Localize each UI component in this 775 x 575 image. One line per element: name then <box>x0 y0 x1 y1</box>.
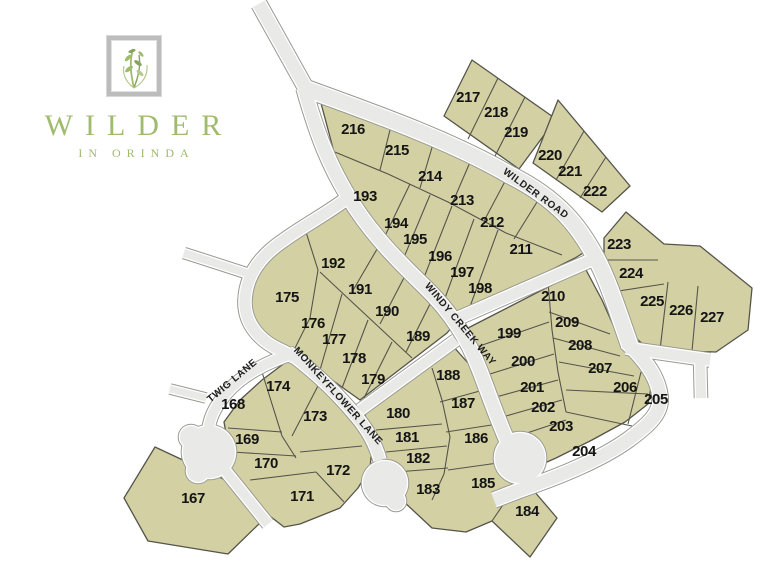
lot-number-192: 192 <box>321 255 345 272</box>
lot-215[interactable]: 215 <box>385 142 409 159</box>
lot-number-209: 209 <box>555 314 579 331</box>
lot-number-194: 194 <box>384 215 409 232</box>
lot-number-190: 190 <box>375 303 399 320</box>
lot-number-171: 171 <box>290 488 314 505</box>
lot-number-224: 224 <box>619 265 644 282</box>
lot-226[interactable]: 226 <box>669 302 693 319</box>
lot-number-175: 175 <box>275 289 299 306</box>
lot-224[interactable]: 224 <box>619 265 644 282</box>
lot-172[interactable]: 172 <box>326 462 350 479</box>
lot-number-181: 181 <box>395 429 419 446</box>
lot-214[interactable]: 214 <box>418 168 443 185</box>
lot-number-206: 206 <box>613 379 637 396</box>
lot-number-211: 211 <box>510 241 533 258</box>
lot-number-188: 188 <box>436 367 460 384</box>
lot-number-185: 185 <box>471 475 495 492</box>
lot-225[interactable]: 225 <box>640 293 664 310</box>
cul-de-sac-bulb <box>495 433 545 483</box>
lot-223[interactable]: 223 <box>607 236 631 253</box>
lot-204[interactable]: 204 <box>572 443 597 460</box>
lot-map: WILDER ROADWINDY CREEK WAYMONKEYFLOWER L… <box>0 0 775 575</box>
lot-207[interactable]: 207 <box>588 360 612 377</box>
lot-178[interactable]: 178 <box>342 350 366 367</box>
lot-number-167: 167 <box>181 490 205 507</box>
lot-number-212: 212 <box>480 214 504 231</box>
lot-194[interactable]: 194 <box>384 215 409 232</box>
lot-184[interactable]: 184 <box>515 503 540 520</box>
lot-number-202: 202 <box>531 399 555 416</box>
lot-number-191: 191 <box>348 281 372 298</box>
lot-190[interactable]: 190 <box>375 303 399 320</box>
cul-de-sac-bulb <box>187 460 209 482</box>
lot-221[interactable]: 221 <box>558 163 582 180</box>
lot-179[interactable]: 179 <box>361 371 385 388</box>
lot-number-205: 205 <box>644 391 668 408</box>
lot-number-198: 198 <box>468 280 492 297</box>
lot-201[interactable]: 201 <box>520 379 544 396</box>
lot-188[interactable]: 188 <box>436 367 460 384</box>
lot-219[interactable]: 219 <box>504 124 528 141</box>
lot-number-219: 219 <box>504 124 528 141</box>
lot-168[interactable]: 168 <box>221 396 245 413</box>
lot-number-173: 173 <box>303 408 327 425</box>
lot-number-178: 178 <box>342 350 366 367</box>
lot-number-222: 222 <box>583 183 607 200</box>
cul-de-sac-bulb <box>180 426 202 448</box>
lot-200[interactable]: 200 <box>511 353 535 370</box>
lot-222[interactable]: 222 <box>583 183 607 200</box>
lot-number-213: 213 <box>450 192 474 209</box>
lot-number-168: 168 <box>221 396 245 413</box>
lot-217[interactable]: 217 <box>456 89 480 106</box>
lot-174[interactable]: 174 <box>266 378 291 395</box>
lot-183[interactable]: 183 <box>416 481 440 498</box>
lot-206[interactable]: 206 <box>613 379 637 396</box>
lot-196[interactable]: 196 <box>428 248 452 265</box>
lot-202[interactable]: 202 <box>531 399 555 416</box>
wilder-orinda-site-map: WILDER IN ORINDA WILDER ROADWINDY CREEK … <box>0 0 775 575</box>
lot-number-200: 200 <box>511 353 535 370</box>
lot-220[interactable]: 220 <box>538 147 562 164</box>
lot-number-225: 225 <box>640 293 664 310</box>
road-segment <box>170 389 206 398</box>
lot-169[interactable]: 169 <box>235 431 259 448</box>
lot-number-193: 193 <box>353 188 377 205</box>
lot-number-207: 207 <box>588 360 612 377</box>
lot-197[interactable]: 197 <box>450 264 474 281</box>
lot-number-218: 218 <box>484 104 508 121</box>
lot-number-215: 215 <box>385 142 409 159</box>
lot-227[interactable]: 227 <box>700 309 724 326</box>
road-segment <box>259 4 308 92</box>
lot-number-189: 189 <box>406 328 430 345</box>
lot-170[interactable]: 170 <box>254 455 278 472</box>
lot-number-214: 214 <box>418 168 443 185</box>
lot-number-176: 176 <box>301 315 325 332</box>
lot-number-208: 208 <box>568 337 592 354</box>
lot-number-199: 199 <box>497 325 521 342</box>
lot-number-217: 217 <box>456 89 480 106</box>
lot-198[interactable]: 198 <box>468 280 492 297</box>
lot-186[interactable]: 186 <box>464 430 488 447</box>
lot-187[interactable]: 187 <box>451 395 475 412</box>
lot-189[interactable]: 189 <box>406 328 430 345</box>
lot-number-180: 180 <box>386 405 410 422</box>
lot-number-187: 187 <box>451 395 475 412</box>
lot-213[interactable]: 213 <box>450 192 474 209</box>
lot-180[interactable]: 180 <box>386 405 410 422</box>
lot-203[interactable]: 203 <box>549 418 573 435</box>
lot-218[interactable]: 218 <box>484 104 508 121</box>
lot-number-197: 197 <box>450 264 474 281</box>
lot-number-210: 210 <box>541 288 565 305</box>
lot-177[interactable]: 177 <box>322 331 346 348</box>
lot-173[interactable]: 173 <box>303 408 327 425</box>
lot-211[interactable]: 211 <box>510 241 533 258</box>
lot-number-221: 221 <box>558 163 582 180</box>
lot-number-172: 172 <box>326 462 350 479</box>
lot-182[interactable]: 182 <box>406 450 430 467</box>
lot-176[interactable]: 176 <box>301 315 325 332</box>
road-segment <box>700 356 701 398</box>
lot-212[interactable]: 212 <box>480 214 504 231</box>
lot-192[interactable]: 192 <box>321 255 345 272</box>
lot-number-227: 227 <box>700 309 724 326</box>
lot-number-182: 182 <box>406 450 430 467</box>
lot-205[interactable]: 205 <box>644 391 668 408</box>
lot-number-179: 179 <box>361 371 385 388</box>
lot-number-216: 216 <box>341 121 365 138</box>
lot-number-195: 195 <box>403 231 427 248</box>
lot-171[interactable]: 171 <box>290 488 314 505</box>
lot-number-220: 220 <box>538 147 562 164</box>
lot-number-184: 184 <box>515 503 540 520</box>
lot-195[interactable]: 195 <box>403 231 427 248</box>
lot-175[interactable]: 175 <box>275 289 299 306</box>
lot-181[interactable]: 181 <box>395 429 419 446</box>
lot-216[interactable]: 216 <box>341 121 365 138</box>
lot-number-226: 226 <box>669 302 693 319</box>
lot-number-177: 177 <box>322 331 346 348</box>
lot-number-170: 170 <box>254 455 278 472</box>
lot-number-183: 183 <box>416 481 440 498</box>
lot-193[interactable]: 193 <box>353 188 377 205</box>
lot-199[interactable]: 199 <box>497 325 521 342</box>
lot-number-174: 174 <box>266 378 291 395</box>
lot-208[interactable]: 208 <box>568 337 592 354</box>
road-segment <box>184 253 249 274</box>
lot-185[interactable]: 185 <box>471 475 495 492</box>
lot-number-186: 186 <box>464 430 488 447</box>
cul-de-sac-bulb <box>387 492 405 510</box>
lot-number-169: 169 <box>235 431 259 448</box>
lot-number-196: 196 <box>428 248 452 265</box>
lot-191[interactable]: 191 <box>348 281 372 298</box>
lot-number-223: 223 <box>607 236 631 253</box>
lot-210[interactable]: 210 <box>541 288 565 305</box>
lot-167[interactable]: 167 <box>181 490 205 507</box>
lot-number-204: 204 <box>572 443 597 460</box>
lot-number-203: 203 <box>549 418 573 435</box>
lot-number-201: 201 <box>520 379 544 396</box>
lot-209[interactable]: 209 <box>555 314 579 331</box>
